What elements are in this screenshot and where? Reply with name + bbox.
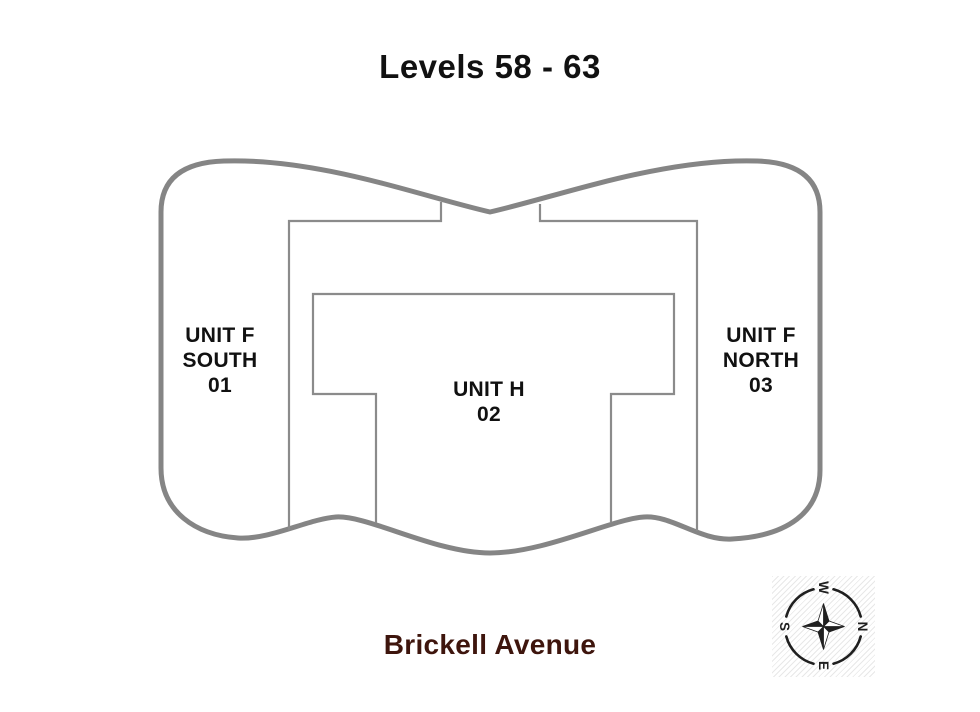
unit-h-label: UNIT H 02	[399, 377, 579, 427]
interior-wall-south	[289, 202, 441, 530]
unit-f-north-label: UNIT F NORTH 03	[671, 323, 851, 398]
compass-north-letter: N	[855, 622, 870, 632]
unit-f-south-label: UNIT F SOUTH 01	[130, 323, 310, 398]
compass-south-letter: S	[777, 622, 792, 631]
compass-rose: N E S W	[772, 576, 875, 677]
compass-star	[803, 604, 845, 650]
compass-east-letter: E	[816, 661, 831, 670]
floorplan-page: Levels 58 - 63 UNIT F SOUTH 01 UNIT H 02…	[0, 0, 980, 712]
compass-rose-drawing: N E S W	[772, 576, 875, 677]
compass-west-letter: W	[816, 581, 831, 594]
